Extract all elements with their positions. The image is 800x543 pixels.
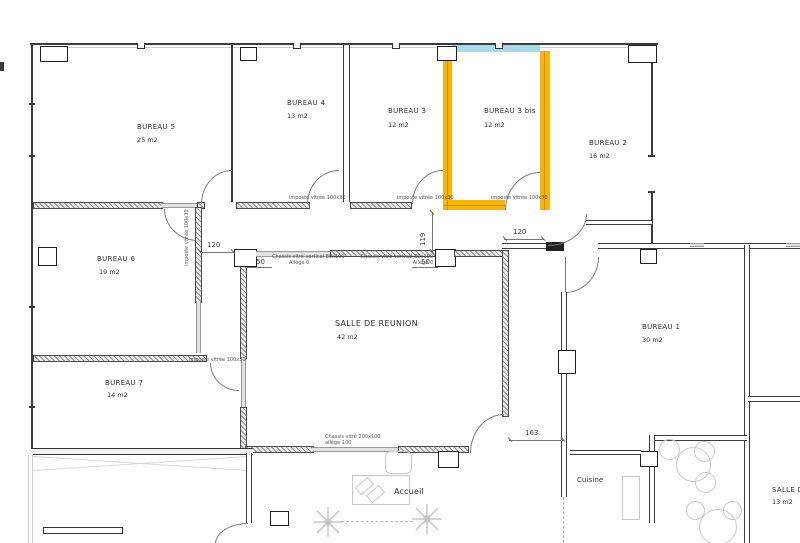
dim-line xyxy=(200,252,234,253)
door-arc-bureau5 xyxy=(201,170,232,204)
imposte-b6-window xyxy=(161,203,197,208)
window-break-icon xyxy=(137,43,145,49)
room-label-bureau3: BUREAU 3 xyxy=(388,107,426,115)
window-tick-left-1 xyxy=(29,103,35,105)
room-area-bureau2: 16 m2 xyxy=(589,152,610,160)
dim-50-left: 50 xyxy=(256,258,265,266)
wall-line-in-orange-bottom xyxy=(443,205,505,206)
wall-b4-hatched xyxy=(236,202,310,209)
wall-line-in-orange-left xyxy=(447,60,448,210)
door-arc-bureau6 xyxy=(164,209,198,241)
highlight-wall-orange-right xyxy=(540,51,550,210)
room-label-bureau2: BUREAU 2 xyxy=(589,139,627,147)
room-label-bureau5: BUREAU 5 xyxy=(137,123,175,131)
table-chair xyxy=(723,501,742,520)
plant-guide-line xyxy=(341,521,413,522)
wall-b5-b6-hatched xyxy=(33,202,163,209)
window-salle-left xyxy=(241,357,246,407)
room-label-cuisine: Cuisine xyxy=(577,476,603,484)
chassis-right-line2: Allège 0 xyxy=(353,261,433,267)
dim-120-right: 120 xyxy=(513,228,526,236)
pillar-b1-left-wall xyxy=(558,350,576,374)
wall-vertical-247 xyxy=(246,453,252,523)
imposte-label-b6-vertical: imposte vitrée 100x30 xyxy=(185,210,191,266)
dim-120-left: 120 xyxy=(207,241,220,249)
door-arc-bureau1 xyxy=(565,257,599,293)
window-tick-b2-1 xyxy=(648,155,655,157)
window-break-icon xyxy=(392,43,400,49)
dim-line xyxy=(246,267,272,268)
door-arc-salle-se xyxy=(470,414,504,453)
door-arc-bureau2 xyxy=(548,214,587,246)
pillar-top-2 xyxy=(240,47,257,61)
room-label-accueil: Accueil xyxy=(394,487,424,496)
wall-cuisine-dashed xyxy=(563,497,565,543)
pillar-left-wall xyxy=(38,247,57,266)
floor-plan: 120 119 120 163 50 50 imposte vitrée 100… xyxy=(0,0,800,543)
room-area-bureau3: 12 m2 xyxy=(388,121,409,129)
door-leaf-bureau1 xyxy=(565,257,566,292)
desk-chair xyxy=(385,451,412,474)
wall-salle-dej-left xyxy=(649,435,655,523)
wall-left-exterior-top xyxy=(31,43,33,209)
wall-cuisine-top xyxy=(570,450,641,455)
wall-left-faint-2 xyxy=(32,455,33,543)
pillar-salle-nw xyxy=(234,249,257,267)
edge-mark-left xyxy=(0,62,4,71)
dim-line xyxy=(504,239,544,240)
bench-wall-segment xyxy=(43,527,123,534)
chassis-bottom-line2: allège 100 xyxy=(325,441,351,447)
wall-b1-right xyxy=(744,245,750,543)
wall-salle-bottom-west xyxy=(245,446,314,453)
pillar-salle-se xyxy=(438,451,459,468)
pillar-top-4 xyxy=(628,45,657,63)
wall-b2-bottom xyxy=(586,220,652,225)
room-label-salle-dejeuner: SALLE DE xyxy=(772,486,800,494)
pillar-top-1 xyxy=(40,46,68,62)
room-area-salle-dejeuner: 13 m2 xyxy=(772,498,793,506)
room-area-salle-reunion: 42 m2 xyxy=(337,333,358,341)
dim-163: 163 xyxy=(525,429,538,437)
window-break-icon xyxy=(495,43,503,49)
window-corridor-2 xyxy=(786,243,800,247)
dim-line xyxy=(509,440,564,441)
room-label-bureau6: BUREAU 6 xyxy=(97,255,135,263)
wall-b6-b7-hatched xyxy=(33,355,207,362)
room-bureau-3bis-region[interactable] xyxy=(452,52,540,200)
room-area-bureau6: 19 m2 xyxy=(99,268,120,276)
chassis-left-line2: Allège 0 xyxy=(289,261,309,267)
wall-divider-b4-b3 xyxy=(343,45,350,202)
imposte-label-b7: imposte vitrée 100x30 xyxy=(189,358,246,364)
plant-icon xyxy=(310,504,346,540)
table-chair xyxy=(686,501,705,520)
imposte-b6-right-window xyxy=(196,301,201,353)
wall-b6-right-hatched xyxy=(195,207,202,303)
window-tick-left-4 xyxy=(29,406,35,408)
kitchen-counter xyxy=(622,476,640,520)
wall-right-edge xyxy=(748,396,800,402)
door-arc-bottom-left xyxy=(215,523,248,543)
plant-icon xyxy=(409,501,445,537)
wall-line-in-orange-right xyxy=(544,51,545,210)
wall-salle-top-east xyxy=(454,250,505,257)
pillar-cuisine xyxy=(640,451,658,467)
pillar-small-accueil-left xyxy=(270,511,289,526)
wall-b3-hatched xyxy=(350,202,412,209)
window-tick-left-2 xyxy=(29,155,35,157)
room-area-bureau5: 25 m2 xyxy=(137,136,158,144)
room-area-bureau1: 30 m2 xyxy=(642,336,663,344)
table-chair xyxy=(694,441,715,462)
pillar-corridor xyxy=(640,249,657,264)
wall-salle-right xyxy=(502,250,509,417)
room-area-bureau7: 14 m2 xyxy=(107,391,128,399)
wall-b7-bottom xyxy=(33,448,253,455)
window-corridor-1 xyxy=(690,243,704,247)
dim-line xyxy=(432,212,433,252)
dim-119: 119 xyxy=(419,216,427,246)
table-chair xyxy=(659,439,680,460)
room-label-salle-reunion: SALLE DE REUNION xyxy=(335,319,418,328)
table-chair xyxy=(695,472,716,493)
wall-b1-left xyxy=(561,292,567,497)
room-label-bureau7: BUREAU 7 xyxy=(105,379,143,387)
wall-corridor-west xyxy=(502,243,546,249)
dim-line xyxy=(412,267,438,268)
wall-left-faint-1 xyxy=(28,455,29,543)
wall-left-exterior-mid xyxy=(31,209,33,449)
pillar-salle-ne xyxy=(435,249,456,267)
imposte-label-b3: imposte vitrée 100x30 xyxy=(397,196,454,202)
window-break-icon xyxy=(293,43,301,49)
room-label-bureau1: BUREAU 1 xyxy=(642,323,680,331)
door-arc-bureau7 xyxy=(210,363,239,391)
imposte-label-b4: imposte vitrée 100x30 xyxy=(289,196,346,202)
room-area-bureau4: 13 m2 xyxy=(287,112,308,120)
window-salle-bottom xyxy=(312,447,398,452)
window-tick-left-3 xyxy=(29,306,35,308)
room-label-bureau4: BUREAU 4 xyxy=(287,99,325,107)
